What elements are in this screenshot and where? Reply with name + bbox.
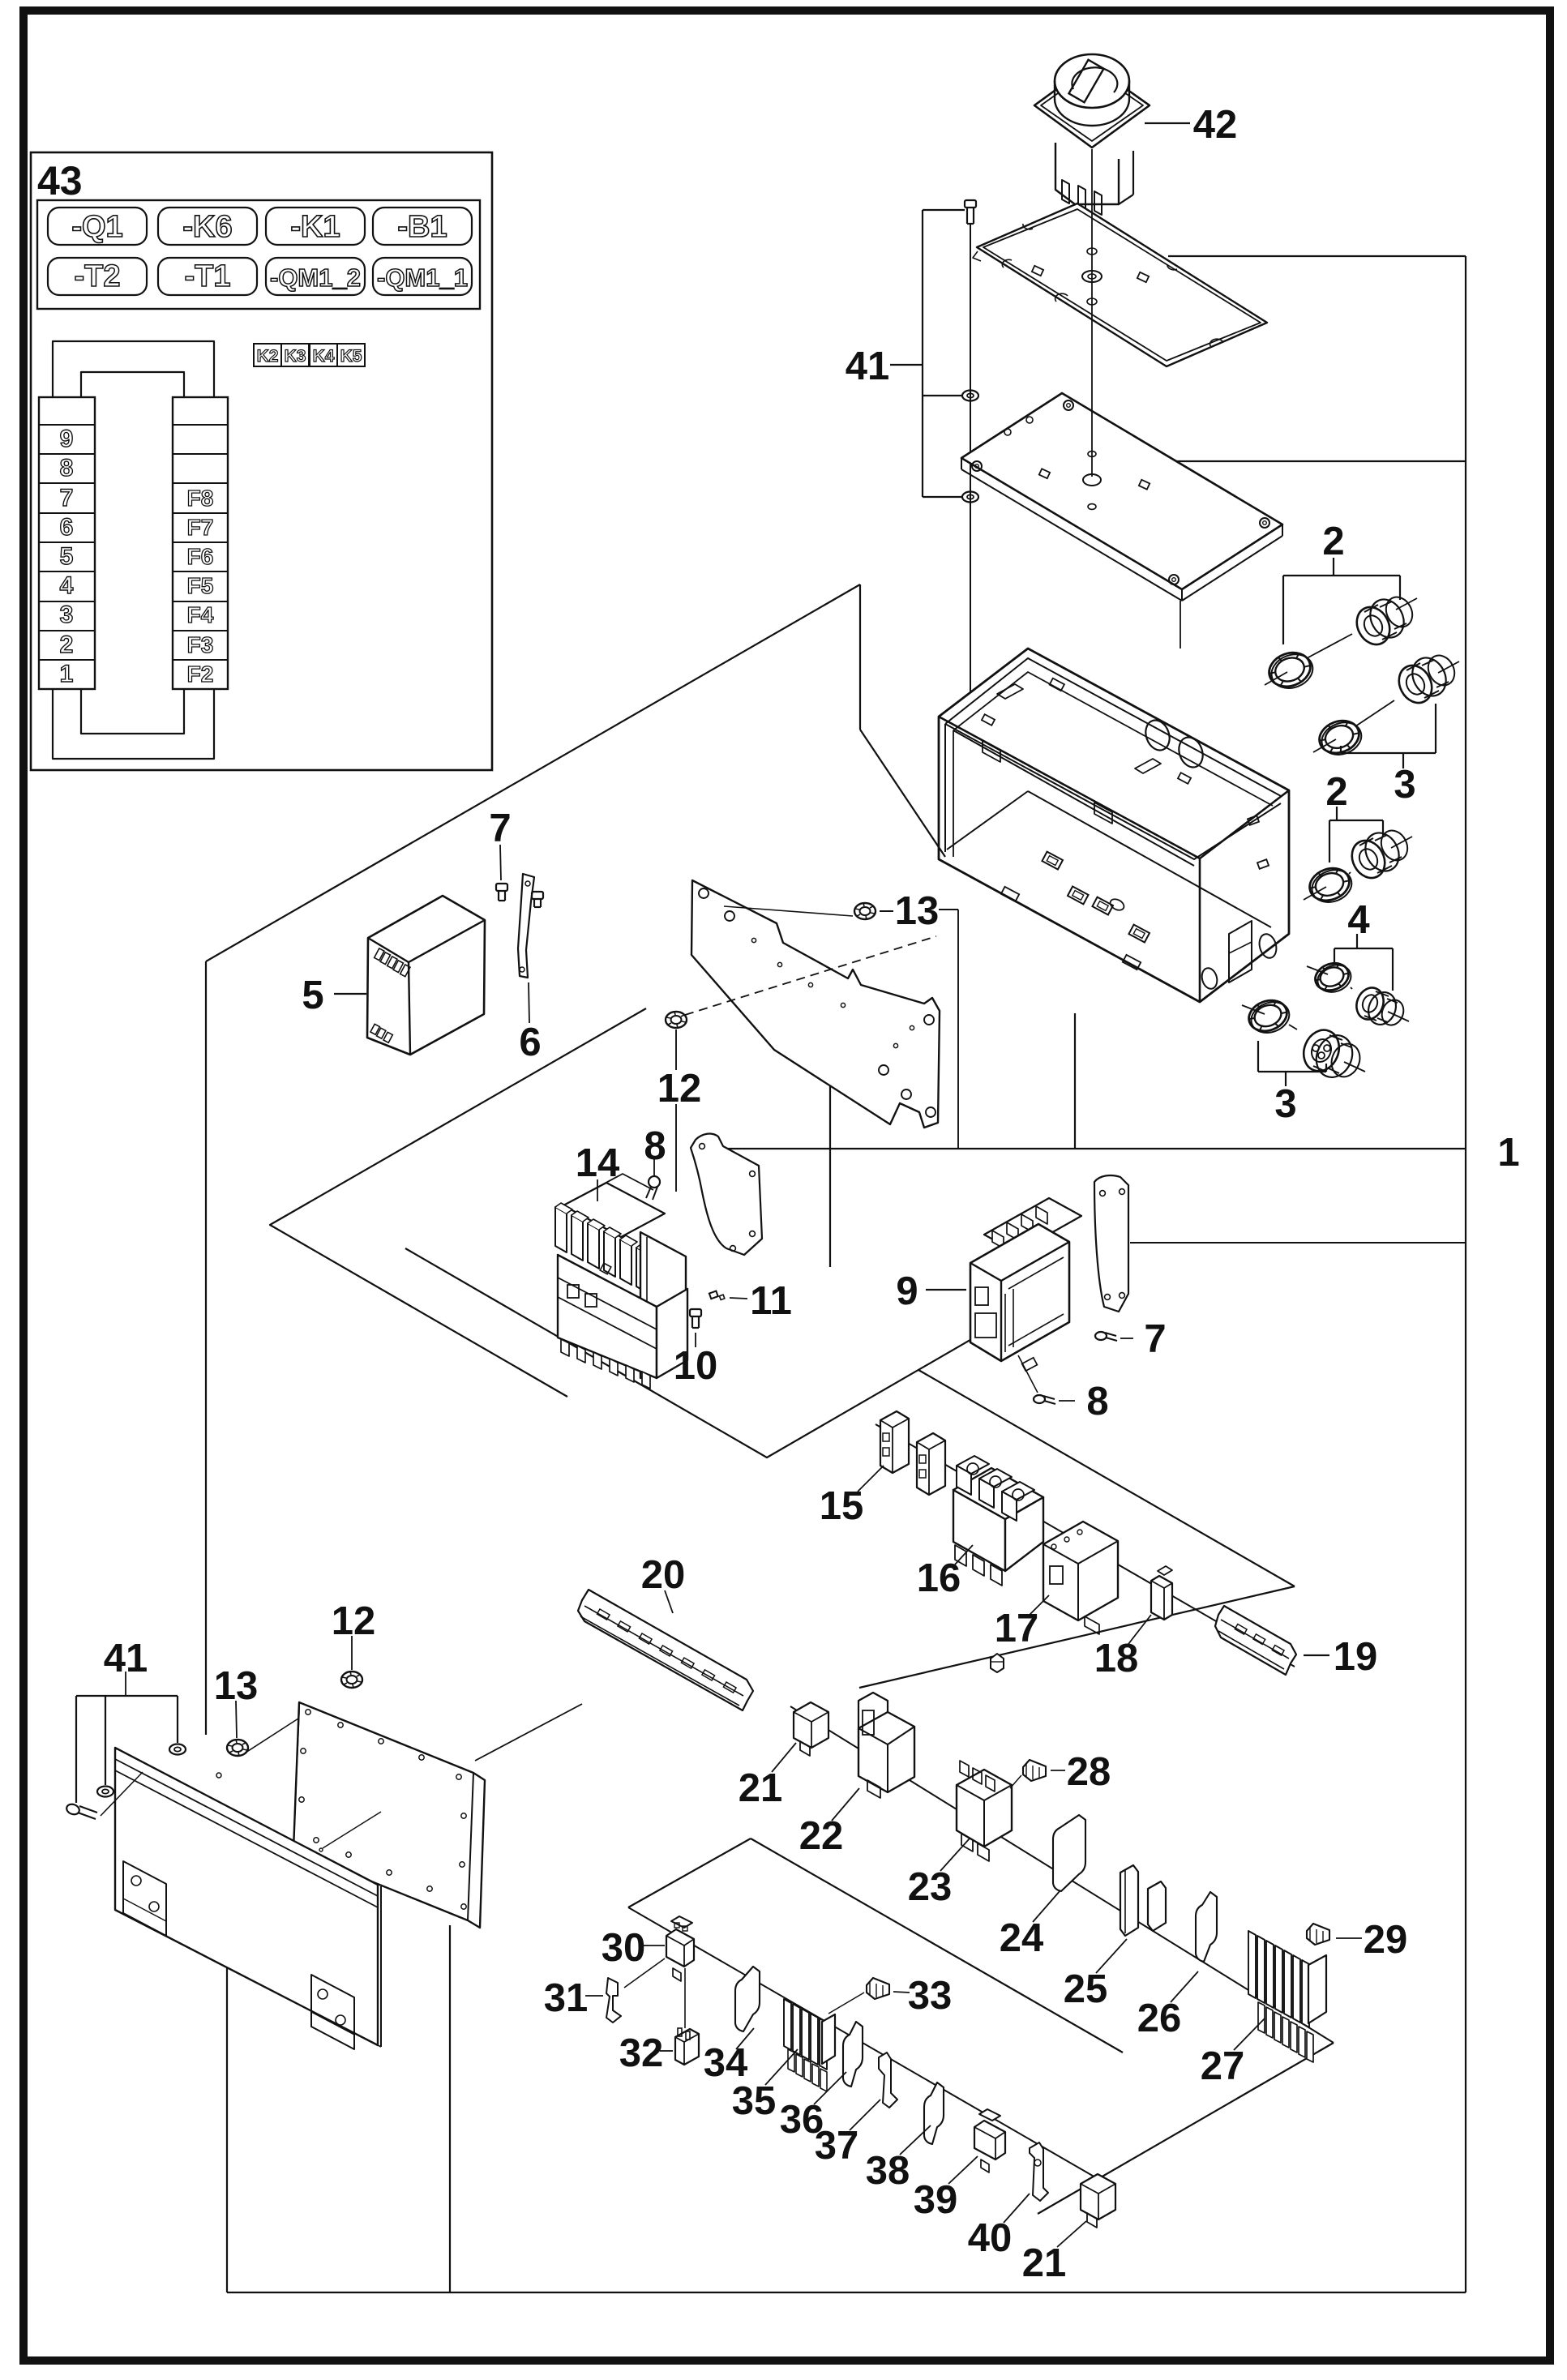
svg-text:7: 7 <box>489 807 511 850</box>
svg-text:35: 35 <box>732 2079 777 2123</box>
svg-text:7: 7 <box>1144 1317 1166 1361</box>
svg-text:18: 18 <box>1094 1637 1139 1680</box>
svg-text:3: 3 <box>1274 1082 1296 1126</box>
svg-text:4: 4 <box>60 572 74 599</box>
svg-text:20: 20 <box>641 1553 686 1597</box>
svg-text:11: 11 <box>750 1279 792 1323</box>
svg-text:7: 7 <box>60 485 74 512</box>
svg-text:29: 29 <box>1364 1918 1408 1962</box>
svg-text:-T1: -T1 <box>185 259 231 293</box>
svg-text:23: 23 <box>908 1865 953 1909</box>
svg-text:40: 40 <box>968 2216 1013 2260</box>
svg-text:26: 26 <box>1137 1997 1182 2040</box>
svg-text:F4: F4 <box>187 602 214 627</box>
svg-text:31: 31 <box>544 1976 589 2020</box>
svg-text:-B1: -B1 <box>397 210 447 244</box>
svg-text:5: 5 <box>60 543 74 570</box>
svg-text:-QM1_1: -QM1_1 <box>377 263 468 292</box>
svg-text:3: 3 <box>1394 763 1415 807</box>
svg-text:21: 21 <box>1022 2241 1067 2285</box>
svg-text:38: 38 <box>866 2149 910 2193</box>
svg-text:8: 8 <box>644 1124 666 1168</box>
svg-text:43: 43 <box>37 158 83 203</box>
svg-text:8: 8 <box>1086 1380 1108 1423</box>
svg-text:41: 41 <box>846 345 890 388</box>
svg-text:F6: F6 <box>187 544 214 569</box>
svg-text:42: 42 <box>1193 103 1238 147</box>
svg-text:K2: K2 <box>257 347 279 366</box>
svg-text:-K6: -K6 <box>182 210 232 244</box>
svg-text:4: 4 <box>1347 898 1369 942</box>
svg-text:5: 5 <box>302 974 323 1017</box>
svg-text:2: 2 <box>1322 520 1344 563</box>
svg-text:22: 22 <box>799 1814 844 1858</box>
svg-text:21: 21 <box>739 1766 783 1810</box>
svg-text:12: 12 <box>657 1067 702 1111</box>
svg-text:32: 32 <box>619 2031 664 2075</box>
svg-text:15: 15 <box>820 1484 864 1528</box>
svg-text:25: 25 <box>1064 1967 1108 2011</box>
svg-text:6: 6 <box>60 514 74 541</box>
svg-text:10: 10 <box>674 1344 718 1388</box>
svg-text:12: 12 <box>332 1599 376 1643</box>
svg-text:K4: K4 <box>313 347 335 366</box>
svg-text:F3: F3 <box>187 632 214 657</box>
svg-text:F2: F2 <box>187 661 214 687</box>
svg-text:9: 9 <box>896 1269 918 1313</box>
svg-text:27: 27 <box>1201 2044 1245 2088</box>
svg-text:34: 34 <box>704 2041 748 2085</box>
svg-text:1: 1 <box>1497 1131 1519 1175</box>
svg-text:30: 30 <box>602 1926 646 1970</box>
svg-text:24: 24 <box>1000 1916 1044 1960</box>
svg-text:K5: K5 <box>340 347 362 366</box>
svg-text:F8: F8 <box>187 486 214 511</box>
svg-text:-QM1_2: -QM1_2 <box>270 263 361 292</box>
svg-text:19: 19 <box>1334 1635 1378 1679</box>
svg-text:3: 3 <box>60 601 74 628</box>
svg-text:28: 28 <box>1067 1750 1111 1794</box>
svg-text:1: 1 <box>60 661 74 687</box>
svg-text:K3: K3 <box>285 347 306 366</box>
svg-text:13: 13 <box>895 889 940 933</box>
svg-text:33: 33 <box>908 1974 953 2018</box>
svg-text:-Q1: -Q1 <box>71 210 122 244</box>
svg-text:39: 39 <box>914 2178 958 2222</box>
svg-text:F5: F5 <box>187 573 214 598</box>
svg-text:-T2: -T2 <box>75 259 121 293</box>
svg-text:2: 2 <box>1325 770 1347 814</box>
svg-text:37: 37 <box>815 2124 859 2168</box>
svg-text:2: 2 <box>60 631 74 658</box>
svg-text:8: 8 <box>60 455 74 482</box>
svg-text:9: 9 <box>60 426 74 452</box>
svg-text:14: 14 <box>576 1141 620 1185</box>
svg-text:6: 6 <box>519 1021 541 1064</box>
svg-text:-K1: -K1 <box>290 210 340 244</box>
svg-text:16: 16 <box>917 1556 961 1600</box>
svg-text:F7: F7 <box>187 515 214 540</box>
